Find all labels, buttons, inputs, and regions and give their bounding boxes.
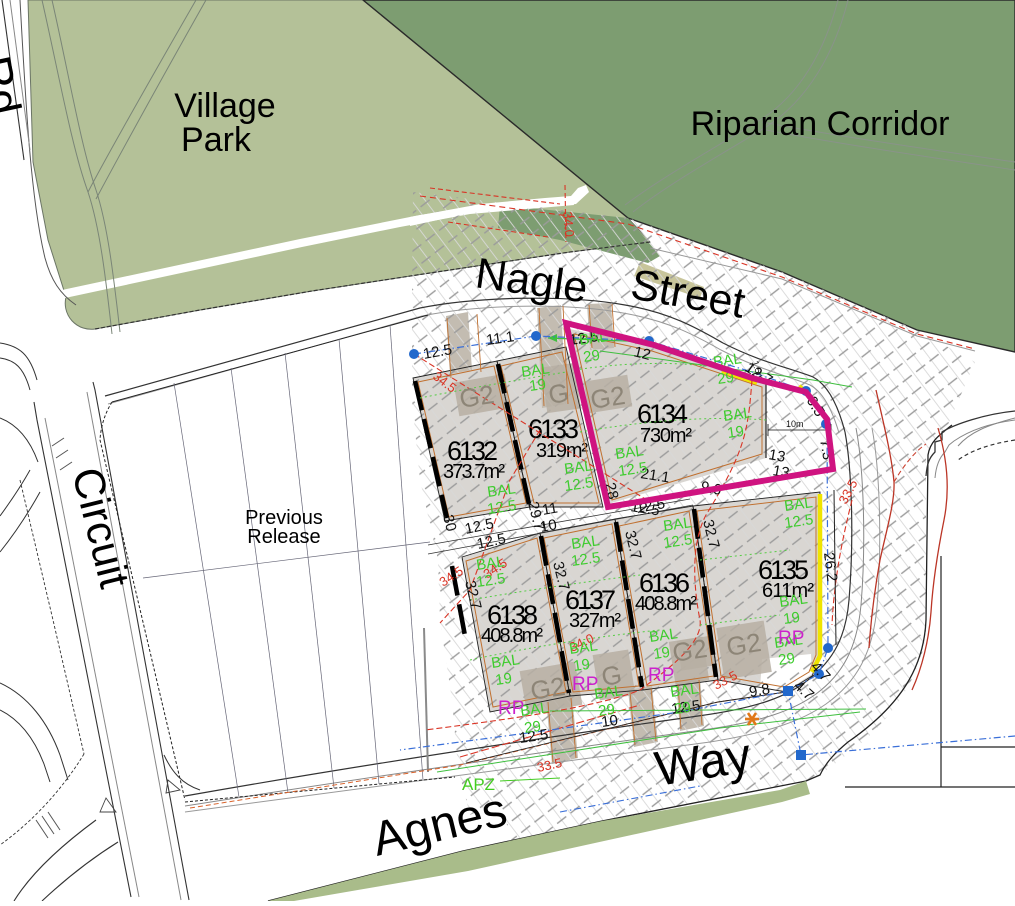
svg-text:Park: Park	[181, 121, 252, 159]
svg-text:G2: G2	[670, 633, 709, 668]
svg-text:10: 10	[539, 516, 558, 536]
svg-text:Village: Village	[174, 87, 275, 125]
svg-text:Riparian Corridor: Riparian Corridor	[691, 105, 950, 143]
svg-text:RP: RP	[648, 665, 674, 686]
svg-text:19: 19	[726, 423, 745, 442]
svg-text:G2: G2	[588, 380, 627, 415]
svg-text:G2: G2	[724, 627, 763, 662]
svg-text:9.8: 9.8	[748, 681, 771, 701]
svg-text:19: 19	[494, 670, 513, 689]
svg-text:APZ: APZ	[462, 775, 495, 794]
svg-text:29: 29	[597, 701, 616, 720]
svg-text:19: 19	[572, 656, 591, 675]
svg-text:RP: RP	[778, 628, 804, 649]
svg-text:10m: 10m	[786, 419, 804, 429]
svg-text:34.0: 34.0	[560, 211, 577, 238]
svg-text:408.8m²: 408.8m²	[481, 625, 543, 647]
svg-text:RP: RP	[498, 698, 524, 719]
svg-text:19: 19	[782, 609, 801, 628]
svg-text:19: 19	[528, 376, 547, 395]
svg-text:327m²: 327m²	[569, 610, 621, 632]
svg-text:29: 29	[523, 718, 542, 737]
svg-text:11: 11	[541, 499, 559, 518]
svg-text:Release: Release	[247, 526, 320, 548]
svg-text:29: 29	[673, 699, 692, 718]
svg-text:373.7m²: 373.7m²	[443, 461, 505, 483]
svg-text:29: 29	[777, 650, 796, 669]
svg-text:26.2: 26.2	[820, 551, 840, 582]
svg-text:G2: G2	[457, 379, 496, 414]
svg-text:RP: RP	[572, 674, 598, 695]
svg-text:19: 19	[652, 644, 671, 663]
svg-text:29: 29	[582, 347, 601, 366]
svg-text:730m²: 730m²	[640, 425, 692, 447]
svg-text:408.8m²: 408.8m²	[635, 593, 697, 615]
svg-text:G2: G2	[528, 671, 567, 706]
